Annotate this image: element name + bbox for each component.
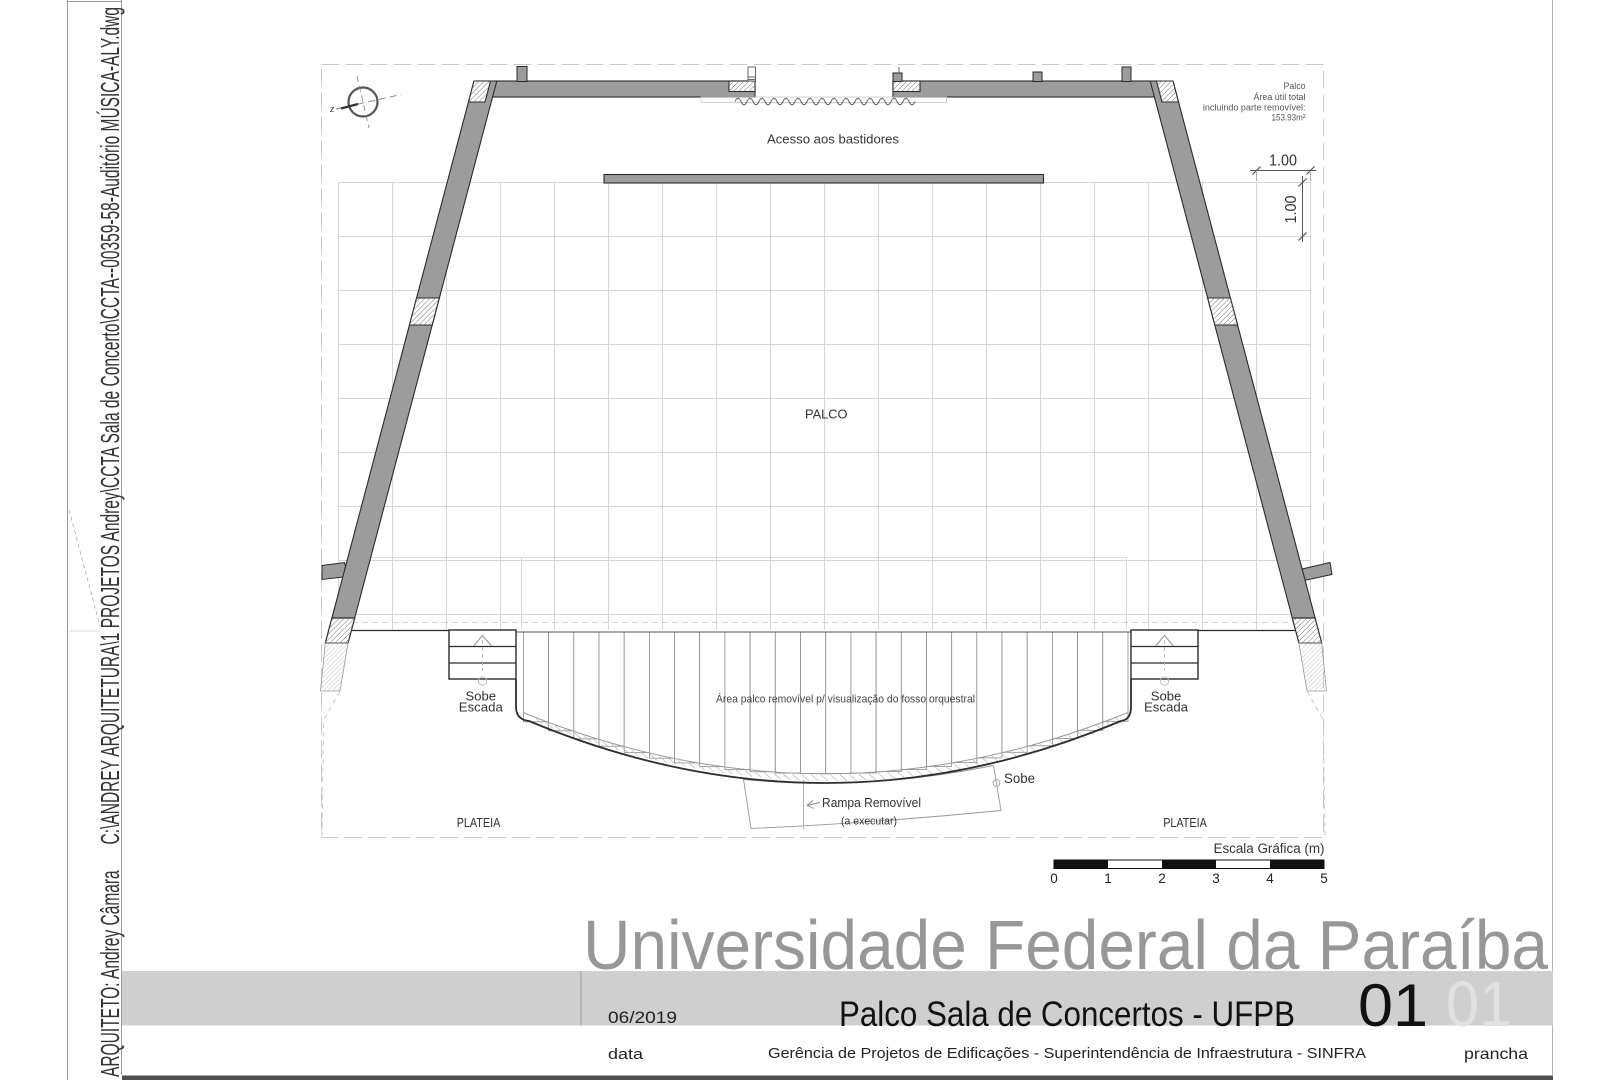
svg-text:5: 5	[1320, 871, 1328, 886]
svg-text:z: z	[329, 103, 335, 115]
svg-text:3: 3	[1212, 871, 1220, 886]
svg-text:(a executar): (a executar)	[841, 816, 897, 828]
svg-text:1: 1	[1104, 871, 1112, 886]
svg-text:PLATEIA: PLATEIA	[457, 816, 501, 830]
svg-text:Palco Sala de Concertos - UFPB: Palco Sala de Concertos - UFPB	[839, 995, 1295, 1034]
svg-text:prancha: prancha	[1464, 1046, 1528, 1063]
svg-text:Gerência de Projetos de Edific: Gerência de Projetos de Edificações - Su…	[768, 1045, 1366, 1062]
svg-text:1.00: 1.00	[1269, 153, 1297, 170]
svg-text:Área útil total: Área útil total	[1254, 92, 1306, 103]
svg-text:0: 0	[1050, 871, 1058, 886]
svg-text:4: 4	[1266, 871, 1274, 886]
svg-text:Sobe: Sobe	[1004, 771, 1035, 786]
svg-text:Área palco removível p/ visual: Área palco removível p/ visualização do …	[716, 693, 975, 706]
svg-text:Rampa Removível: Rampa Removível	[822, 795, 921, 810]
svg-text:06/2019: 06/2019	[608, 1009, 677, 1027]
svg-text:data: data	[608, 1046, 644, 1063]
svg-text:PALCO: PALCO	[805, 407, 848, 422]
svg-text:01: 01	[1358, 972, 1428, 1039]
svg-text:Palco: Palco	[1284, 81, 1306, 92]
svg-text:PLATEIA: PLATEIA	[1163, 816, 1207, 830]
svg-text:Escala Gráfica (m): Escala Gráfica (m)	[1214, 841, 1325, 856]
svg-text:01: 01	[1446, 968, 1512, 1040]
svg-text:1.00: 1.00	[1283, 195, 1300, 223]
svg-text:ARQUITETO: Andrey Câmara: ARQUITETO: Andrey Câmara C:\ANDREY ARQUI…	[95, 7, 125, 1077]
svg-text:Escada: Escada	[459, 700, 504, 715]
svg-text:2: 2	[1158, 871, 1166, 886]
svg-text:Escada: Escada	[1144, 700, 1189, 715]
svg-text:Acesso aos bastidores: Acesso aos bastidores	[767, 132, 900, 147]
svg-text:153.93m²: 153.93m²	[1272, 113, 1306, 124]
